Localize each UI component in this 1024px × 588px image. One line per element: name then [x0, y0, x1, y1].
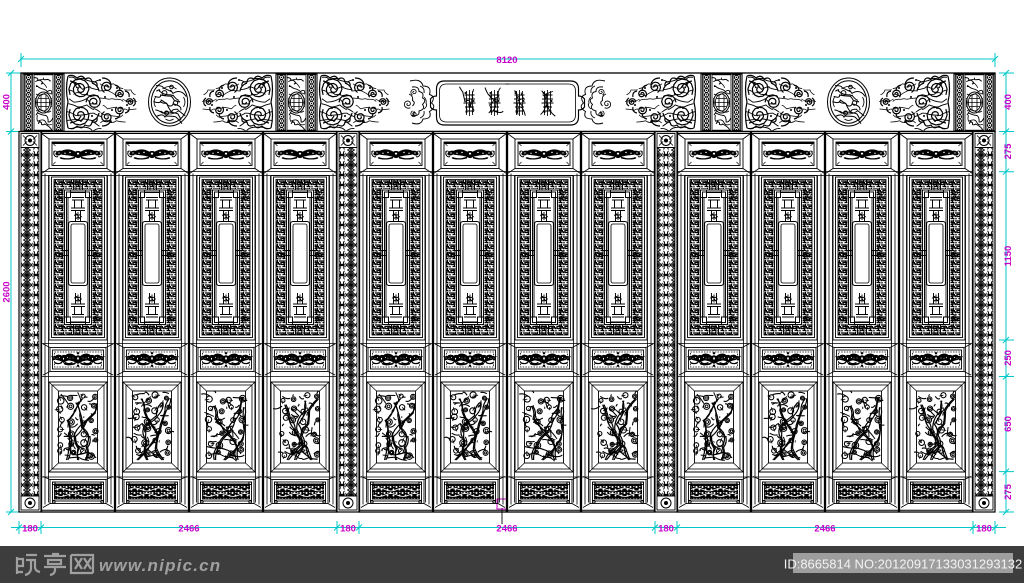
svg-text:650: 650 [1003, 416, 1014, 432]
svg-text:180: 180 [340, 524, 356, 535]
svg-text:1150: 1150 [1003, 246, 1014, 267]
svg-text:400: 400 [1003, 94, 1014, 110]
svg-text:2466: 2466 [178, 524, 199, 535]
svg-text:180: 180 [658, 524, 674, 535]
svg-text:275: 275 [1003, 143, 1014, 160]
svg-text:2600: 2600 [2, 281, 13, 302]
svg-text:250: 250 [1003, 350, 1014, 366]
svg-text:8120: 8120 [496, 55, 517, 66]
svg-text:180: 180 [22, 524, 38, 535]
svg-text:400: 400 [2, 94, 13, 110]
svg-text:180: 180 [976, 524, 992, 535]
svg-text:275: 275 [1003, 483, 1014, 500]
svg-text:ID:8665814 NO:2012091713303129: ID:8665814 NO:20120917133031293132 [784, 557, 1023, 572]
svg-text:2466: 2466 [814, 524, 835, 535]
svg-text:www.nipic.cn: www.nipic.cn [99, 556, 221, 575]
svg-text:2466: 2466 [496, 524, 517, 535]
